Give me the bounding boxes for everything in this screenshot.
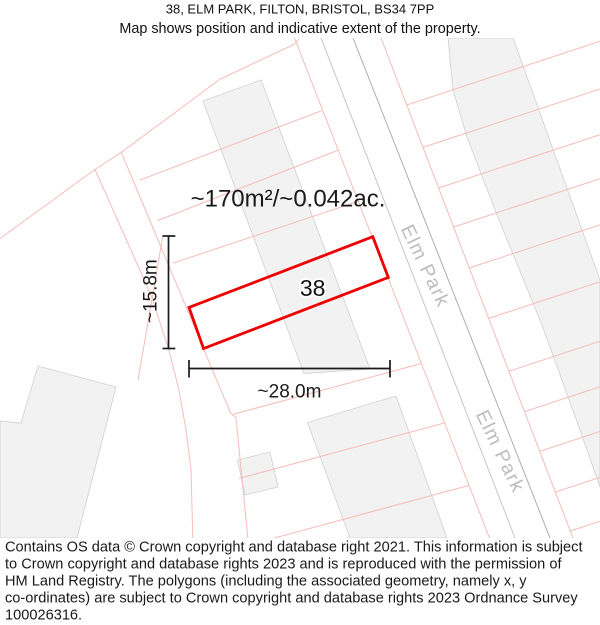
svg-text:~170m²/~0.042ac.: ~170m²/~0.042ac. [191, 186, 386, 213]
svg-text:co-ordinates) are subject to C: co-ordinates) are subject to Crown copyr… [5, 591, 578, 607]
svg-text:100026316.: 100026316. [5, 608, 82, 624]
svg-text:HM Land Registry. The polygons: HM Land Registry. The polygons (includin… [5, 574, 527, 590]
svg-text:Map shows position and indicat: Map shows position and indicative extent… [119, 21, 480, 37]
svg-text:Contains OS data © Crown copyr: Contains OS data © Crown copyright and d… [5, 540, 583, 556]
svg-text:~15.8m: ~15.8m [140, 259, 161, 323]
svg-text:38: 38 [300, 275, 326, 301]
svg-text:~28.0m: ~28.0m [258, 382, 322, 403]
svg-text:to Crown copyright and databas: to Crown copyright and database rights 2… [5, 557, 562, 573]
svg-text:38, ELM PARK, FILTON, BRISTOL,: 38, ELM PARK, FILTON, BRISTOL, BS34 7PP [166, 2, 435, 17]
